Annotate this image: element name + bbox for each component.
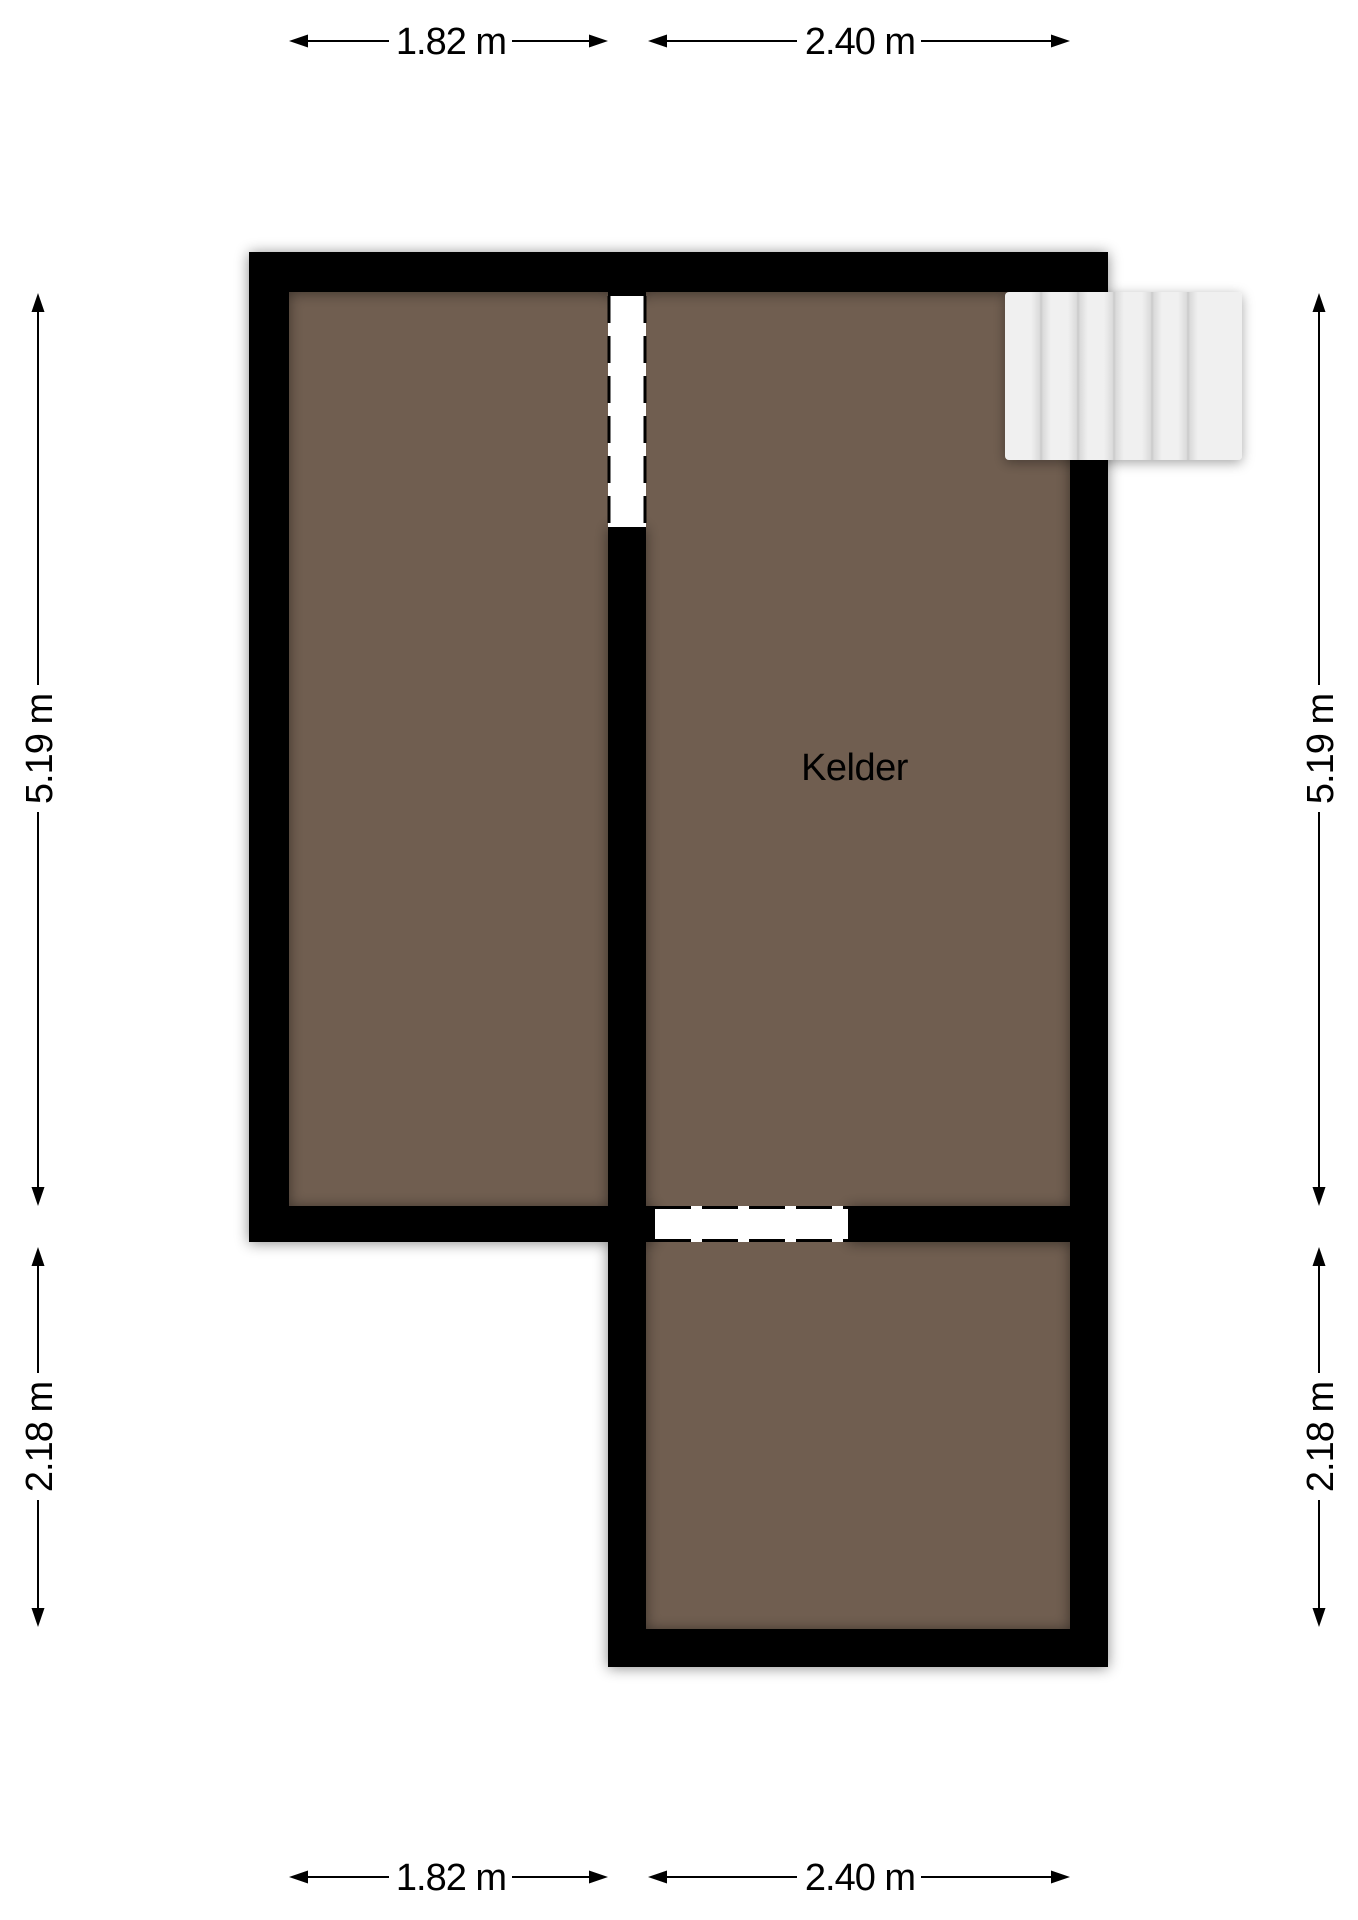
- svg-text:5.19 m: 5.19 m: [1300, 694, 1342, 804]
- svg-text:5.19 m: 5.19 m: [19, 694, 61, 804]
- svg-text:1.82 m: 1.82 m: [396, 1857, 506, 1899]
- svg-text:2.18 m: 2.18 m: [1300, 1382, 1342, 1492]
- svg-text:1.82 m: 1.82 m: [396, 21, 506, 63]
- svg-text:Kelder: Kelder: [801, 747, 909, 789]
- svg-text:2.18 m: 2.18 m: [19, 1382, 61, 1492]
- svg-text:2.40 m: 2.40 m: [805, 1857, 915, 1899]
- svg-text:2.40 m: 2.40 m: [805, 21, 915, 63]
